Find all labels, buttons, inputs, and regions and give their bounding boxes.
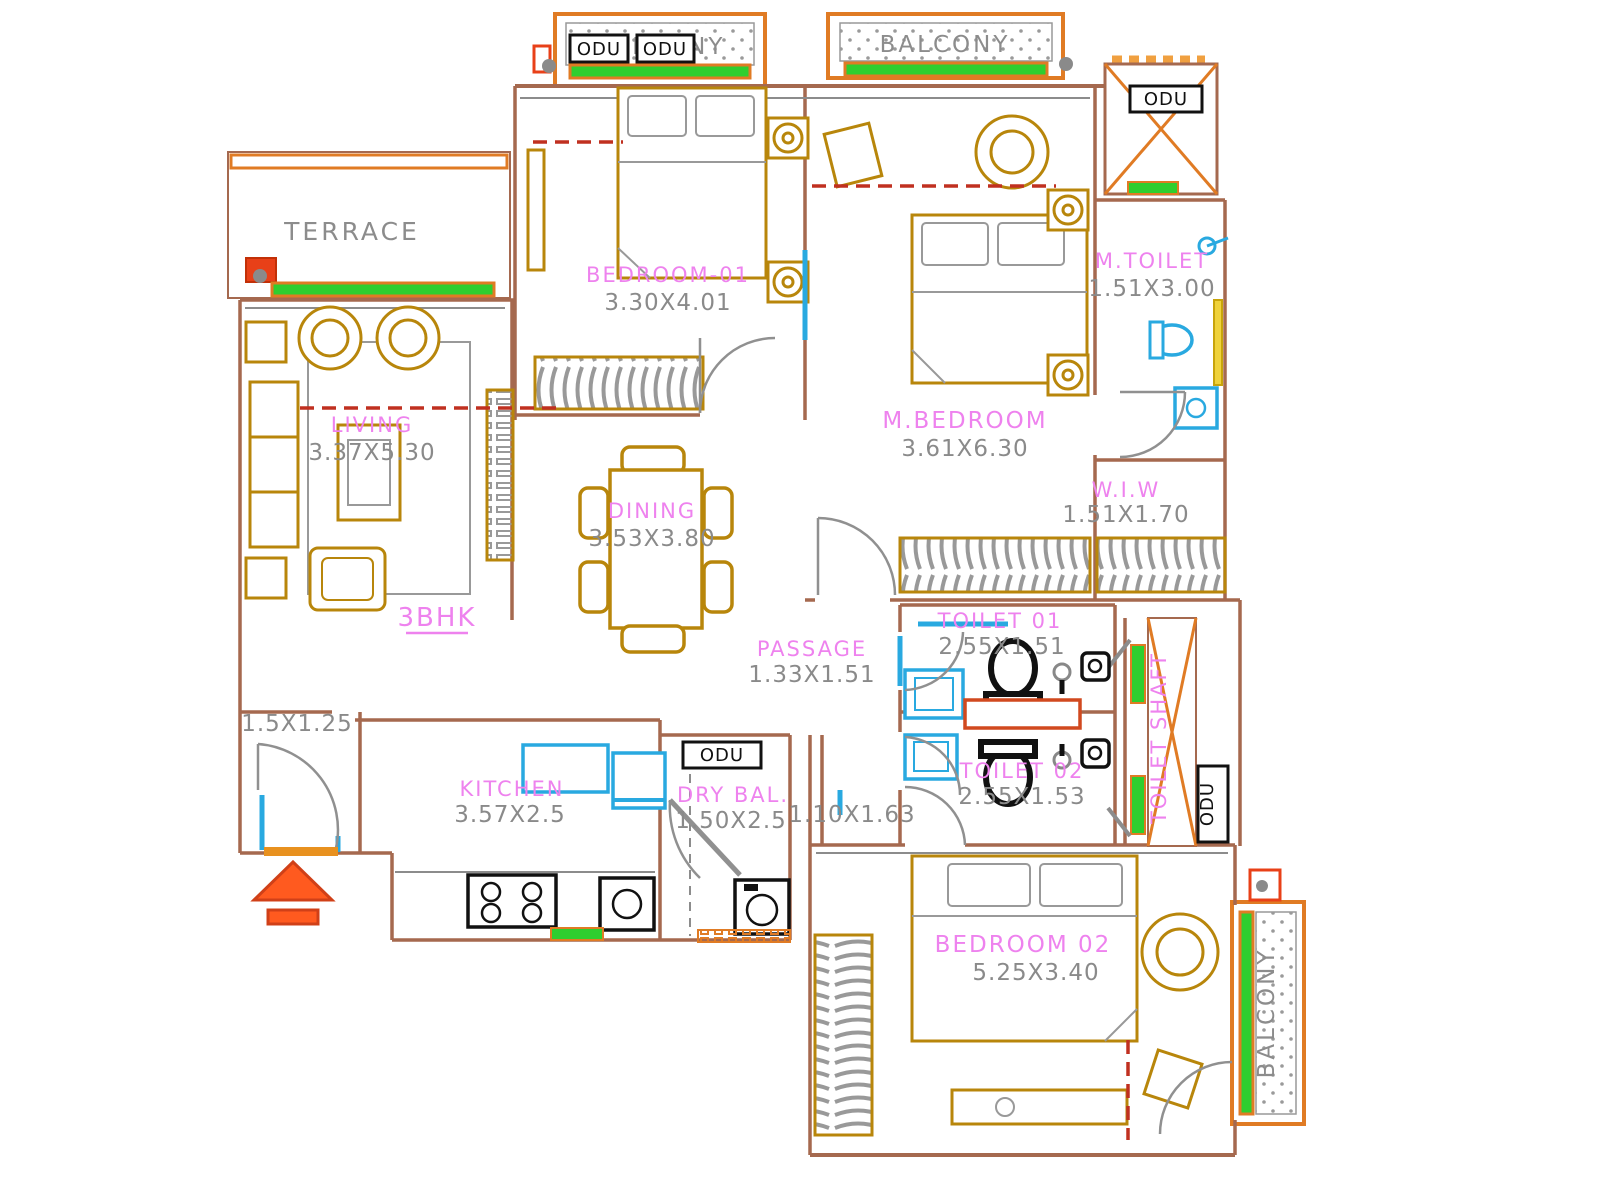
m-toilet-label: M.TOILET	[1095, 249, 1209, 273]
plan-type-label: 3BHK	[398, 603, 477, 633]
odu-label-4: ODU	[700, 745, 744, 766]
balcony-top-right-label: BALCONY	[880, 32, 1011, 58]
wiw-label: W.I.W	[1092, 478, 1161, 502]
m-toilet-dims: 1.51X3.00	[1088, 276, 1215, 302]
bedroom01-dims: 3.30X4.01	[604, 290, 731, 316]
dry-balcony-label: DRY BAL.	[677, 783, 789, 807]
kitchen-fixtures	[468, 745, 665, 940]
dining-dims: 3.53X3.80	[588, 526, 715, 552]
lobby-dims: 1.10X1.63	[788, 802, 915, 828]
living-dims: 3.37X5.30	[308, 440, 435, 466]
toilet01-dims: 2.55X1.51	[938, 634, 1065, 660]
living-label: LIVING	[331, 413, 413, 437]
floor-plan-page: BALCONY BALCONY BALCONY	[0, 0, 1600, 1200]
passage-label: PASSAGE	[757, 637, 867, 661]
toilet01-label: TOILET 01	[937, 609, 1063, 633]
odu-shaft-top-right	[1105, 60, 1217, 194]
bedroom01-label: BEDROOM-01	[586, 263, 750, 287]
kitchen-dims: 3.57X2.5	[454, 802, 566, 828]
entrance	[254, 847, 338, 924]
toilet02-dims: 2.55X1.53	[958, 784, 1085, 810]
bedroom02-dims: 5.25X3.40	[972, 960, 1099, 986]
odu-label-1: ODU	[577, 39, 621, 60]
toilet-shaft-label: TOILET SHAFT	[1147, 652, 1171, 825]
wiw-dims: 1.51X1.70	[1062, 502, 1189, 528]
odu-label-2: ODU	[643, 39, 687, 60]
balcony-right-label: BALCONY	[1254, 948, 1280, 1079]
floor-plan-drawing: BALCONY BALCONY BALCONY	[0, 0, 1600, 1200]
toilet-partition	[965, 700, 1080, 728]
terrace-label: TERRACE	[283, 217, 420, 246]
m-bedroom-dims: 3.61X6.30	[901, 436, 1028, 462]
dry-balcony-fixtures	[698, 880, 790, 942]
entrance-arrow-icon	[254, 862, 332, 924]
kitchen-label: KITCHEN	[460, 777, 565, 801]
dining-label: DINING	[608, 499, 696, 523]
balcony-top-right-structure: BALCONY	[828, 14, 1073, 78]
foyer-dims: 1.5X1.25	[241, 711, 353, 737]
bedroom01-furniture	[528, 88, 808, 409]
bedroom02-furniture	[815, 856, 1218, 1135]
odu-label-5: ODU	[1197, 782, 1218, 826]
odu-label-3: ODU	[1144, 89, 1188, 110]
bedroom02-label: BEDROOM 02	[935, 932, 1112, 958]
passage-dims: 1.33X1.51	[748, 662, 875, 688]
m-bedroom-label: M.BEDROOM	[882, 408, 1047, 434]
balcony-right-structure: BALCONY	[1232, 870, 1304, 1124]
toilet02-label: TOILET 02	[959, 759, 1085, 783]
dry-balcony-dims: 1.50X2.5	[675, 808, 787, 834]
